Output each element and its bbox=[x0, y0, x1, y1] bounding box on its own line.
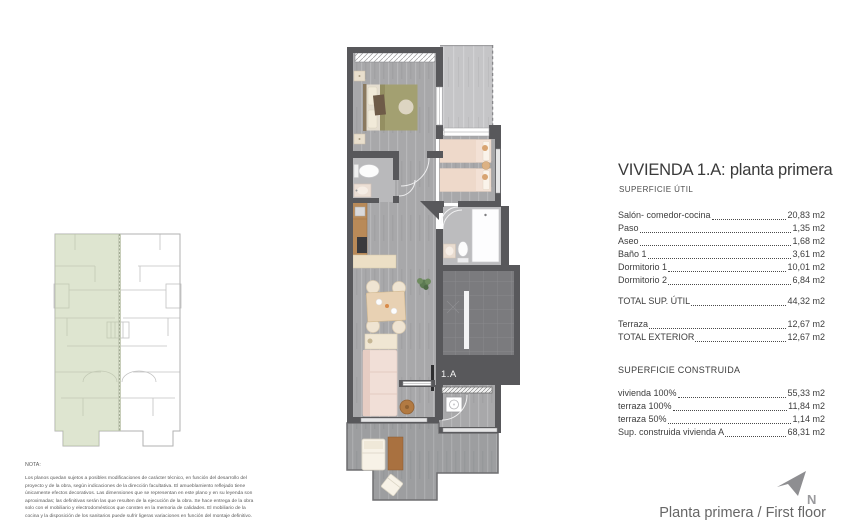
washbasin bbox=[444, 244, 456, 258]
north-arrow-icon bbox=[777, 471, 806, 496]
shower bbox=[472, 209, 499, 262]
area-row-dormitorio1: Dormitorio 110,01 m2 bbox=[618, 261, 825, 274]
plan-sheet: 1.A VIVIENDA 1.A: planta primera SUPERFI… bbox=[0, 0, 850, 530]
area-row-sup-construida: Sup. construida vivienda A68,31 m2 bbox=[618, 426, 825, 439]
floor-caption: Planta primera / First floor bbox=[659, 505, 826, 521]
washbasin bbox=[354, 184, 371, 197]
toilet bbox=[458, 242, 469, 263]
area-row-aseo: Aseo1,68 m2 bbox=[618, 235, 825, 248]
single-bed bbox=[440, 169, 491, 192]
terrace-table bbox=[388, 437, 403, 470]
page-title: VIVIENDA 1.A: planta primera bbox=[618, 161, 825, 180]
area-row-dormitorio2: Dormitorio 26,84 m2 bbox=[618, 274, 825, 287]
water-heater bbox=[446, 397, 462, 412]
wardrobe bbox=[355, 53, 435, 62]
info-panel: VIVIENDA 1.A: planta primera SUPERFICIE … bbox=[618, 161, 825, 439]
area-row-terraza50: terraza 50%1,14 m2 bbox=[618, 413, 825, 426]
north-indicator: N bbox=[776, 470, 826, 510]
key-plan bbox=[35, 230, 205, 455]
lounge-chair bbox=[362, 439, 385, 470]
area-row-terraza: Terraza12,67 m2 bbox=[618, 318, 825, 331]
area-row-total-exterior: TOTAL EXTERIOR12,67 m2 bbox=[618, 331, 825, 344]
unit-label: 1.A bbox=[441, 369, 457, 380]
area-row-paso: Paso1,35 m2 bbox=[618, 222, 825, 235]
single-bed bbox=[440, 140, 491, 163]
area-row-total-util: TOTAL SUP. ÚTIL44,32 m2 bbox=[618, 295, 825, 308]
legal-note: NOTA: Los planos quedan sujetos a posibl… bbox=[25, 462, 257, 521]
key-plan-unit-highlight bbox=[55, 234, 121, 446]
toilet bbox=[354, 165, 379, 178]
area-row-terraza100: terraza 100%11,84 m2 bbox=[618, 400, 825, 413]
stairwell bbox=[443, 271, 514, 355]
area-row-bano: Baño 13,61 m2 bbox=[618, 248, 825, 261]
superficie-util-heading: SUPERFICIE ÚTIL bbox=[619, 185, 825, 194]
entry-door-threshold bbox=[442, 387, 492, 393]
legal-note-body: Los planos quedan sujetos a posibles mod… bbox=[25, 475, 257, 521]
oven bbox=[357, 237, 367, 253]
legal-note-heading: NOTA: bbox=[25, 462, 257, 468]
key-plan-right-recess bbox=[166, 284, 181, 308]
floor-plan: 1.A bbox=[343, 43, 523, 508]
terrace-top-floor bbox=[440, 45, 493, 131]
sofa bbox=[363, 350, 397, 416]
tv bbox=[431, 365, 434, 391]
superficie-construida-heading: SUPERFICIE CONSTRUIDA bbox=[618, 364, 825, 377]
bedside-table bbox=[482, 162, 490, 170]
area-table: Salón- comedor-cocina20,83 m2 Paso1,35 m… bbox=[618, 209, 825, 439]
double-bed bbox=[363, 84, 418, 131]
area-row-salon: Salón- comedor-cocina20,83 m2 bbox=[618, 209, 825, 222]
area-row-vivienda100: vivienda 100%55,33 m2 bbox=[618, 387, 825, 400]
